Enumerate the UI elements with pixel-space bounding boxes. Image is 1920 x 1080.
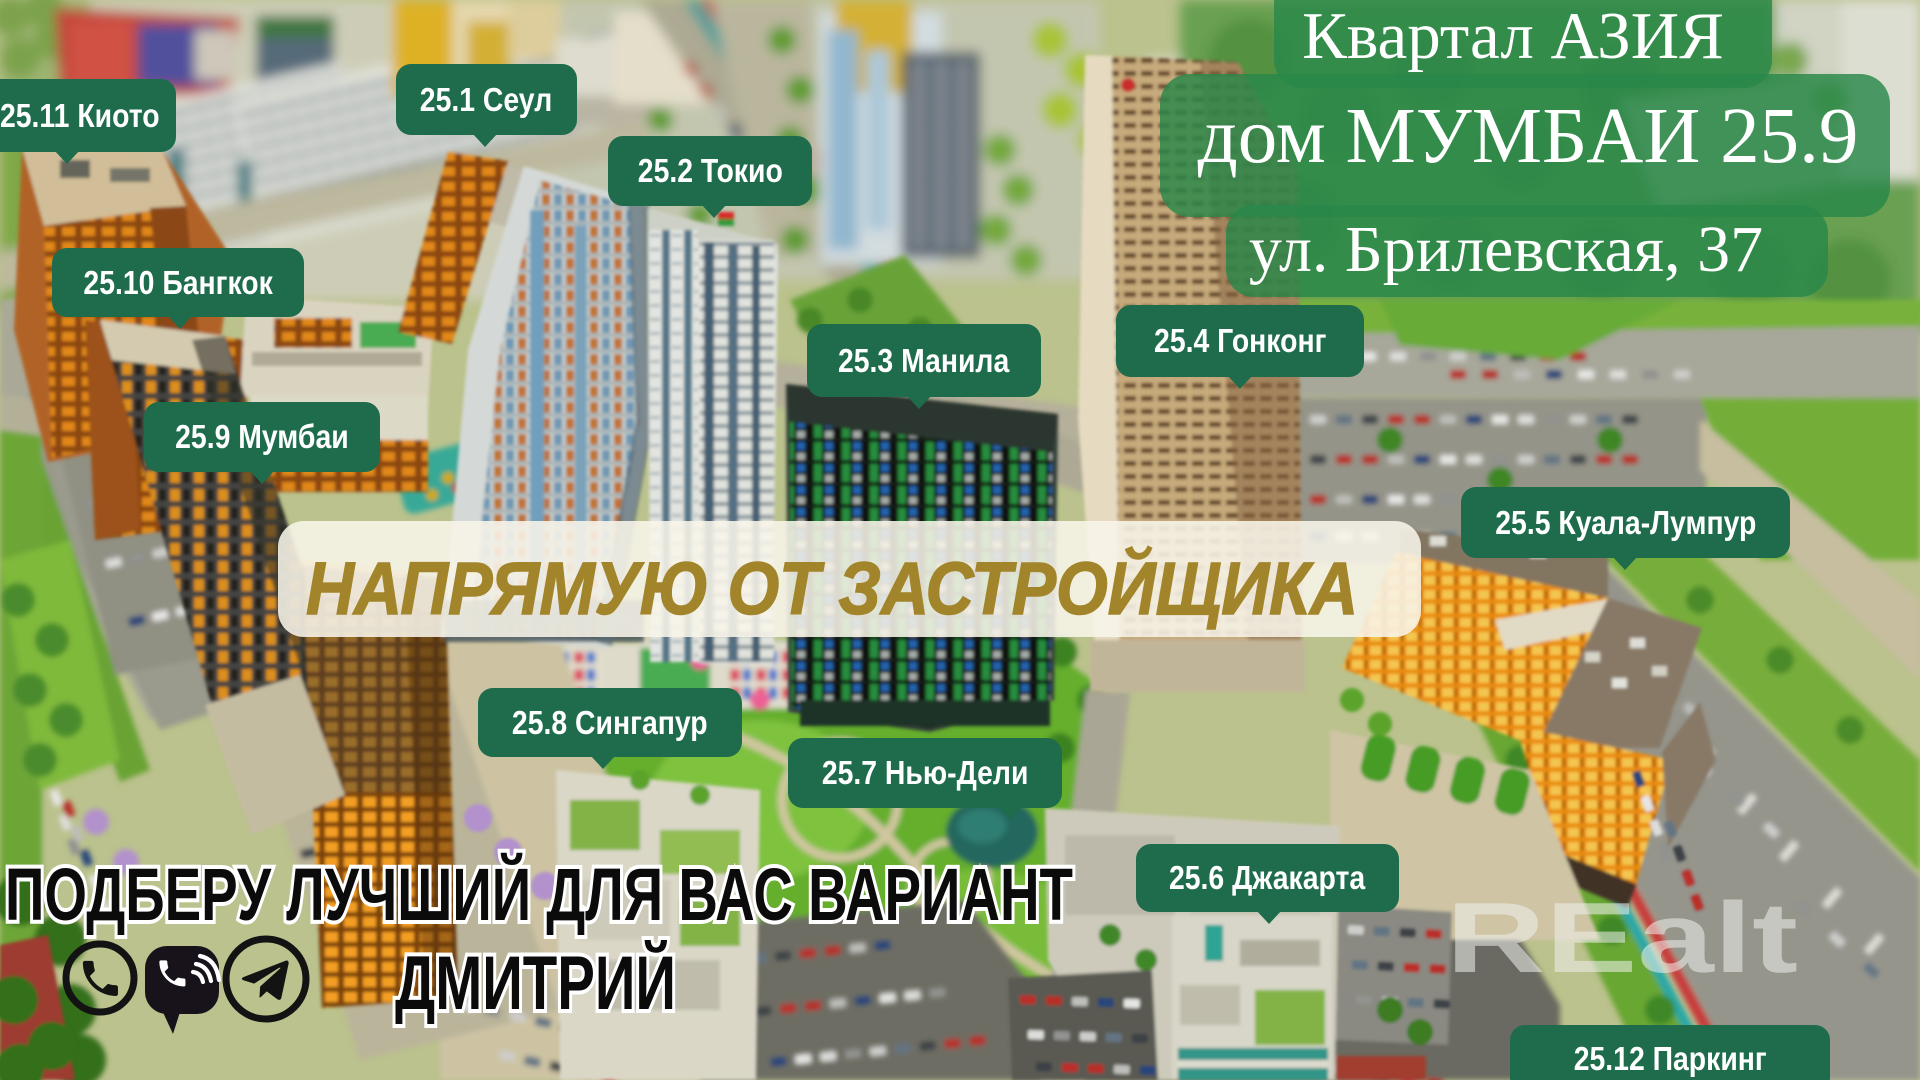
svg-text:REalt: REalt [1446,882,1798,994]
svg-text:НАПРЯМУЮ ОТ ЗАСТРОЙЩИКА: НАПРЯМУЮ ОТ ЗАСТРОЙЩИКА [306,546,1358,630]
svg-text:ДМИТРИЙ: ДМИТРИЙ [395,940,676,1026]
svg-text:ПОДБЕРУ ЛУЧШИЙ ДЛЯ ВАС ВАРИАНТ: ПОДБЕРУ ЛУЧШИЙ ДЛЯ ВАС ВАРИАНТ [5,852,1073,936]
